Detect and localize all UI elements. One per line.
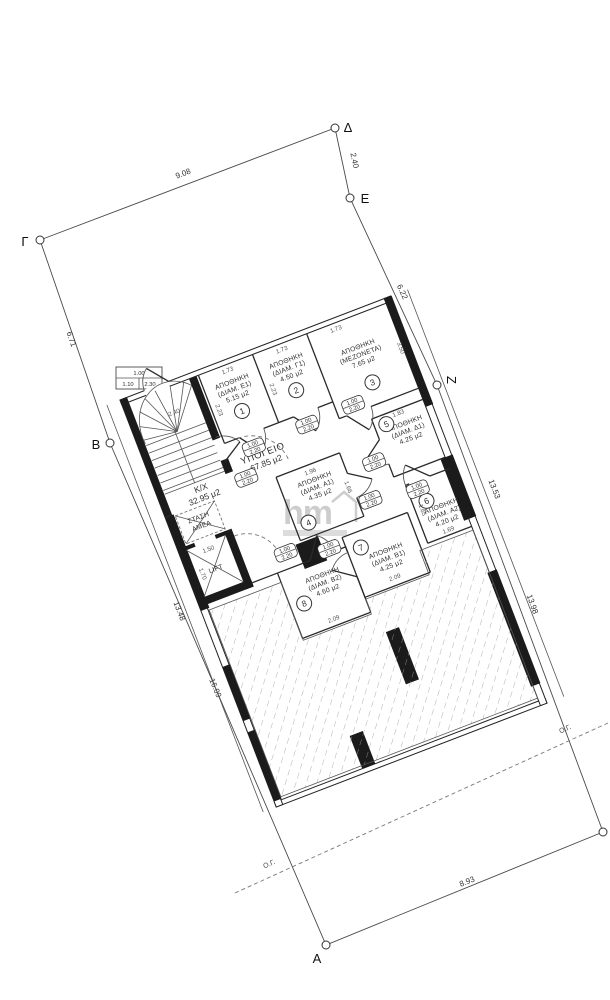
room-storage-8: ΑΠΟΘΗΚΗ (ΔΙΑΜ. Β2) 4.60 μ2 8 <box>289 566 349 613</box>
dim-label: 1.70 <box>197 567 208 581</box>
lift-label: LIFT <box>208 563 224 575</box>
room-storage-2: ΑΠΟΘΗΚΗ (ΔΙΑΜ. Γ1) 4.50 μ2 2 <box>268 352 316 404</box>
door-tag: 1.00 2.20 <box>358 489 384 510</box>
vertex-point-alpha <box>322 941 330 949</box>
door-tag: 1.00 2.20 <box>361 452 387 473</box>
watermark-house-icon <box>332 492 356 522</box>
building: LIFT ΣΤΑΣΗ ΑΜΕΑ ΥΠΟΓΕΙΟ 67.85 μ2 Κ/Χ 32.… <box>113 277 548 807</box>
building-line-label: Ο.Γ. <box>558 724 572 735</box>
door-tag: 1.00 2.20 <box>294 414 320 435</box>
dim-label: 9.08 <box>174 166 192 180</box>
dim-label: 2.40 <box>348 152 360 170</box>
vertex-point-gamma <box>36 236 44 244</box>
vertex-label: Γ <box>21 234 28 249</box>
vertex-label: Α <box>313 951 322 966</box>
dim-label: 2.09 <box>327 614 341 625</box>
door-tag: 1.00 2.20 <box>273 542 299 563</box>
vertex-label: Ε <box>361 191 370 206</box>
vertex-point-beta <box>106 439 114 447</box>
dim-label: 8.93 <box>458 874 476 888</box>
dim-label: 2.23 <box>213 403 224 417</box>
dim-label: 1.73 <box>329 324 343 335</box>
door-tag: 1.00 2.20 <box>316 538 342 559</box>
door-tag: 1.00 2.20 <box>340 394 366 415</box>
dim-label: 1.69 <box>442 525 456 536</box>
dim-label: 1.73 <box>275 345 289 356</box>
dim-label: 2.23 <box>267 383 278 397</box>
dim-label: 2.09 <box>388 572 402 583</box>
dim-label: 1.83 <box>392 408 406 419</box>
floor-plan-svg: Ο.Γ. Ο.Γ. Γ Δ Ε Ζ Α Β 9.08 2.40 6.22 13.… <box>0 0 610 1000</box>
room-storage-3: ΑΠΟΘΗΚΗ (ΜΕΖΟΝΕΤΑ) 7.65 μ2 3 <box>336 337 394 398</box>
vertex-label: Δ <box>344 120 353 135</box>
vertex-point-zeta <box>433 381 441 389</box>
entry-tag-mid: 1.10 <box>122 382 133 388</box>
boundary-polygon <box>40 128 603 945</box>
dim-label: 13.48 <box>172 600 188 622</box>
vertex-point-delta <box>331 124 339 132</box>
dim-label: 13.53 <box>487 478 503 500</box>
door-tag: 1.00 2.20 <box>234 467 260 488</box>
dim-label: 1.50 <box>202 544 216 555</box>
vertex-point-epsilon <box>346 194 354 202</box>
dim-label: 1.73 <box>221 365 235 376</box>
room-storage-1: ΑΠΟΘΗΚΗ (ΔΙΑΜ. Ε1) 5.15 μ2 1 <box>214 372 262 424</box>
dim-label: 13.98 <box>525 593 540 615</box>
floor-plan-canvas: Ο.Γ. Ο.Γ. Γ Δ Ε Ζ Α Β 9.08 2.40 6.22 13.… <box>0 0 610 1000</box>
vertex-label: Ζ <box>444 376 459 384</box>
building-line-label: Ο.Γ. <box>262 859 276 870</box>
vertex-point-corner <box>599 828 607 836</box>
room-storage-7: ΑΠΟΘΗΚΗ (ΔΙΑΜ. Β1) 4.25 μ2 7 <box>351 526 409 580</box>
vertex-label: Β <box>92 437 101 452</box>
